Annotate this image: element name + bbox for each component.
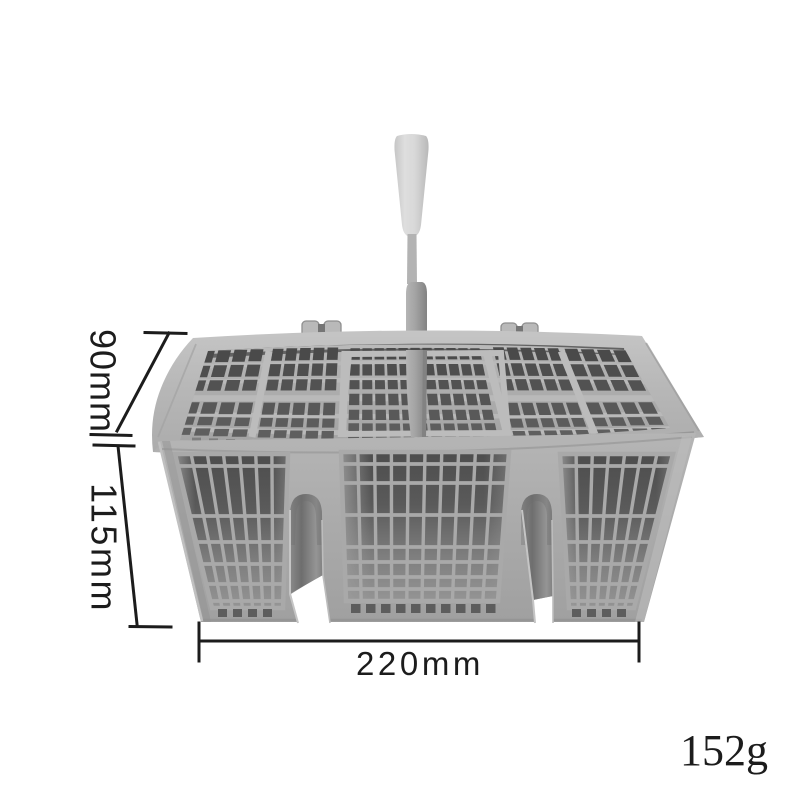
svg-text:152g: 152g [680,726,768,775]
svg-text:90mm: 90mm [82,329,123,433]
svg-text:220mm: 220mm [356,645,484,682]
svg-text:115mm: 115mm [83,483,124,613]
